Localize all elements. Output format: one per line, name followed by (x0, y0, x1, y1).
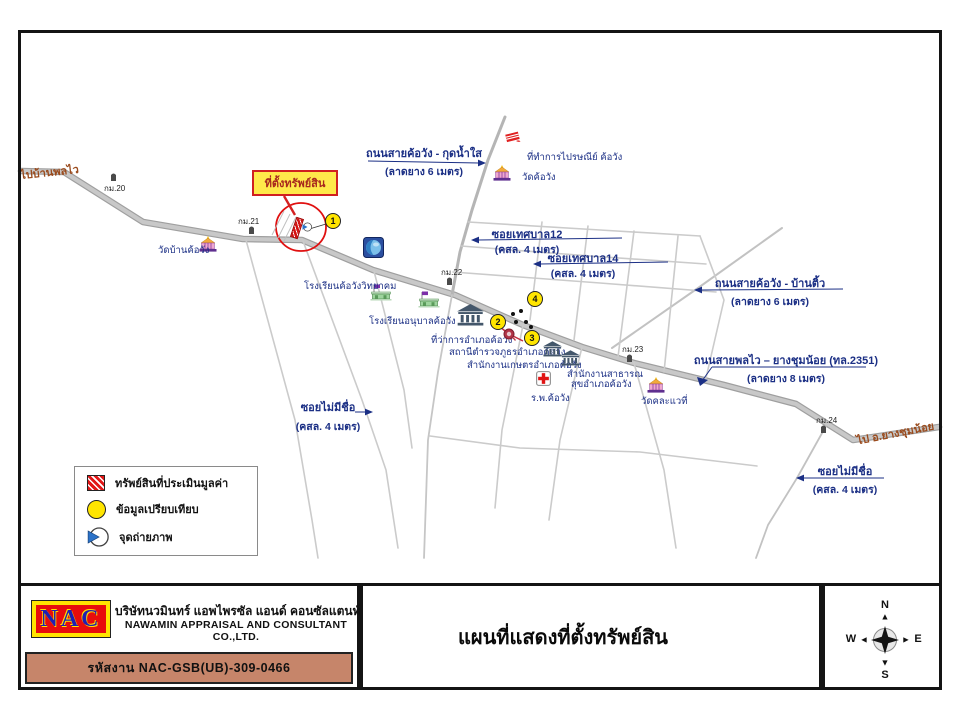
compass-arrow-left-icon: ◄ (860, 636, 869, 645)
compass-s-label: S (881, 669, 888, 681)
nac-logo-text: NAC (41, 606, 102, 633)
company-block: NAC บริษัทนวมินทร์ แอพไพรซัล แอนด์ คอนซั… (18, 583, 360, 690)
compass-arrow-right-icon: ► (902, 636, 911, 645)
compass-n-label: N (881, 599, 889, 611)
nac-logo: NAC (31, 600, 111, 638)
job-code: รหัสงาน NAC-GSB(UB)-309-0466 (88, 658, 291, 678)
map-title: แผนที่แสดงที่ตั้งทรัพย์สิน (458, 621, 668, 653)
company-name-en: NAWAMIN APPRAISAL AND CONSULTANT CO.,LTD… (115, 619, 357, 643)
compass-w-label: W (846, 633, 856, 645)
compass-block: N ▲ W ◄ ► E ▼ S (822, 583, 942, 690)
page: วัดบ้านค้อวังวัดค้อวังที่ทำการไปรษณีย์ ค… (0, 0, 960, 720)
compass-e-label: E (914, 633, 921, 645)
compass-rose-icon (870, 625, 900, 655)
compass-arrow-up-icon: ▲ (881, 613, 890, 622)
job-code-bar: รหัสงาน NAC-GSB(UB)-309-0466 (25, 652, 353, 684)
title-block: แผนที่แสดงที่ตั้งทรัพย์สิน (360, 583, 822, 690)
compass-arrow-down-icon: ▼ (881, 659, 890, 668)
